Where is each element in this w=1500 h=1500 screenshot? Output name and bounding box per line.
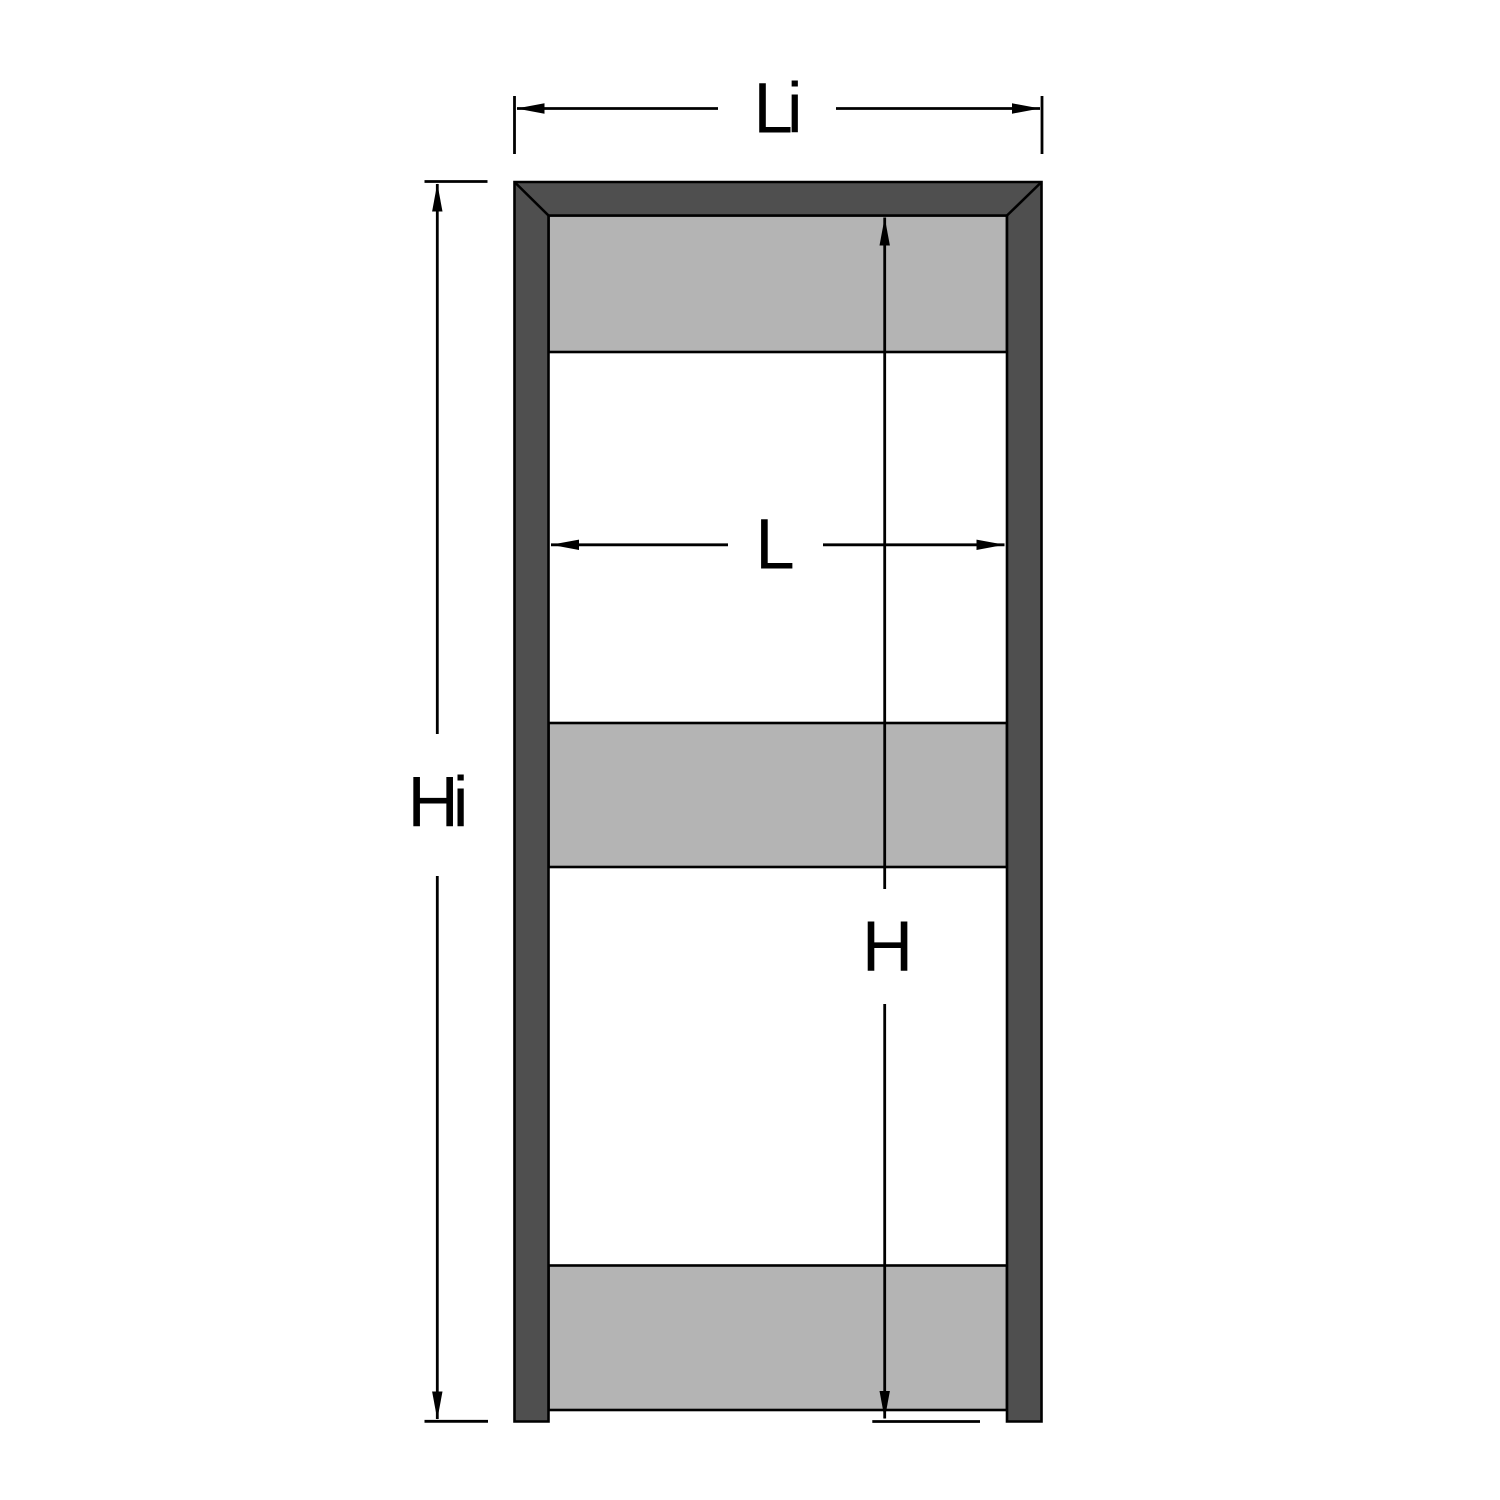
svg-text:L: L [755, 506, 795, 585]
svg-text:Li: Li [753, 70, 797, 149]
svg-text:Hi: Hi [407, 764, 463, 843]
svg-text:H: H [862, 908, 913, 987]
